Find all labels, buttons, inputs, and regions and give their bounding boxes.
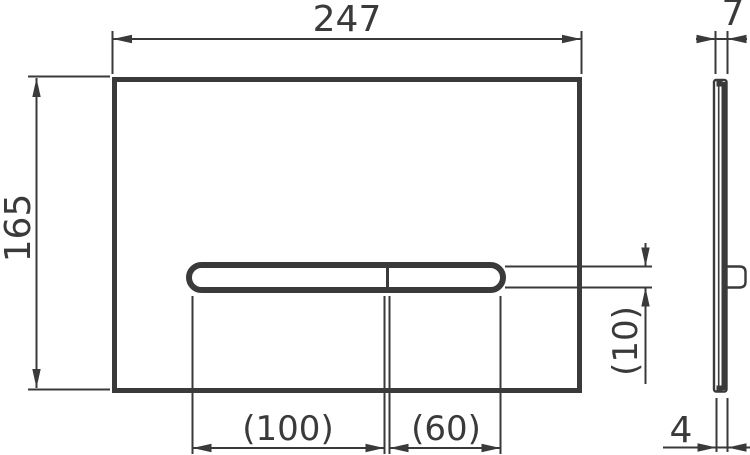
dimension-front-width: 247 [113, 0, 582, 74]
dimension-front-height: 165 [0, 77, 110, 390]
arrowhead-left-icon [728, 443, 747, 451]
dimension-button-right-width: (60) [390, 296, 501, 454]
button-outline [189, 265, 503, 290]
dim-label-button-left-width: (100) [242, 409, 333, 449]
flush-button [189, 263, 503, 292]
arrowhead-up-icon [641, 288, 649, 307]
drawing-canvas: 247 165 7 (10) (100) [0, 0, 750, 455]
plate-outline [115, 80, 580, 391]
arrowhead-up-icon [32, 78, 40, 97]
dim-label-button-height: (10) [606, 306, 646, 376]
side-profile-top-notch [717, 81, 723, 87]
arrowhead-left-icon [390, 444, 409, 452]
dim-label-front-height: 165 [0, 194, 39, 263]
dim-label-side-base-thickness: 4 [670, 410, 693, 451]
side-view [714, 80, 746, 392]
arrowhead-right-icon [698, 443, 717, 451]
dimension-side-base-thickness: 4 [663, 398, 750, 452]
side-profile-back-bar [722, 82, 727, 390]
arrowhead-right-icon [482, 444, 501, 452]
dimension-button-left-width: (100) [193, 296, 385, 454]
arrowhead-left-icon [193, 444, 212, 452]
arrowhead-left-icon [113, 35, 132, 43]
arrowhead-down-icon [641, 248, 649, 267]
front-view [115, 80, 580, 391]
dim-label-front-width: 247 [313, 0, 382, 40]
dim-label-button-right-width: (60) [411, 409, 481, 449]
arrowhead-right-icon [366, 444, 385, 452]
technical-drawing: 247 165 7 (10) (100) [0, 0, 750, 455]
dimension-side-thickness: 7 [696, 0, 747, 74]
arrowhead-right-icon [562, 35, 581, 43]
arrowhead-left-icon [728, 35, 747, 43]
arrowhead-down-icon [32, 369, 40, 388]
arrowhead-right-icon [697, 35, 716, 43]
side-profile-bottom-notch [717, 386, 723, 392]
dim-label-side-thickness: 7 [722, 0, 745, 34]
